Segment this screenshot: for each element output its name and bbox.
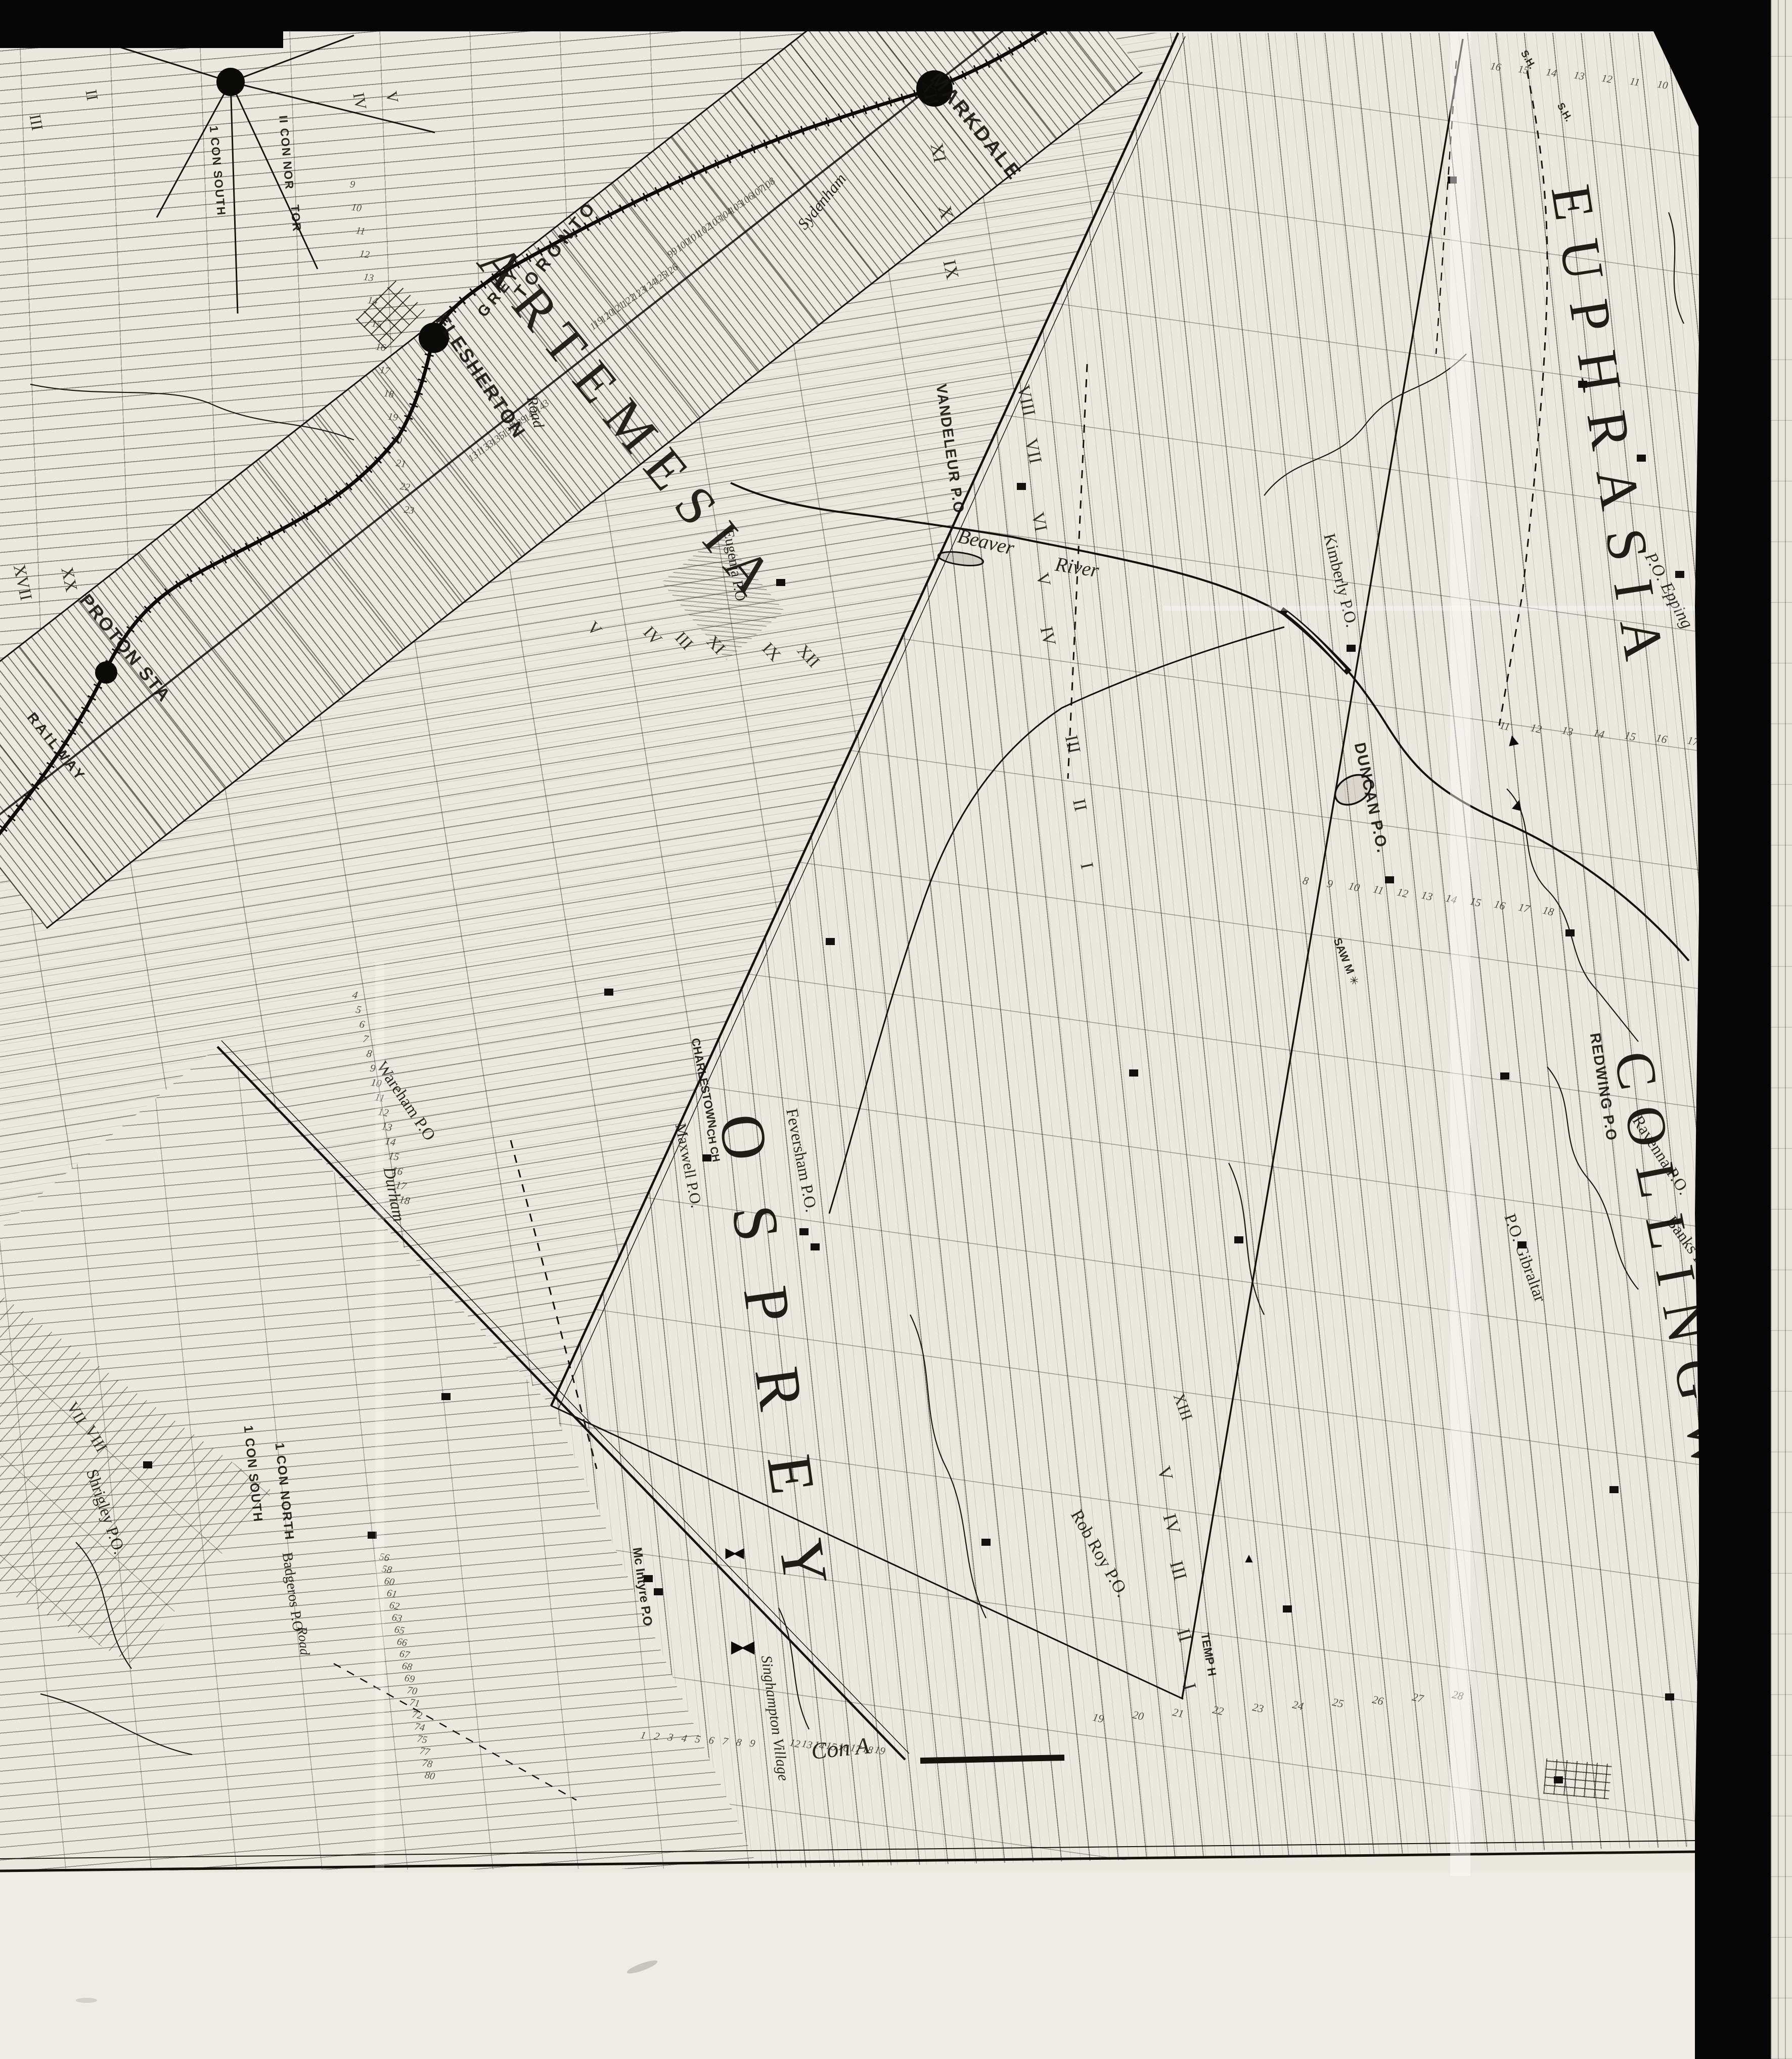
- lots-badgeros-column: 63: [391, 1612, 402, 1624]
- lots-badgeros-column: 72: [411, 1709, 423, 1721]
- lots-collingwood-east: 15: [1624, 730, 1637, 743]
- building-marker: [1500, 1072, 1509, 1080]
- lots-badgeros-column: 62: [388, 1600, 400, 1612]
- lots-badgeros-column: 75: [416, 1733, 428, 1745]
- lots-badgeros-column: 60: [383, 1576, 395, 1587]
- lots-badgeros-column: 78: [421, 1758, 433, 1769]
- village-bowtie: ▶◀: [731, 1639, 751, 1656]
- lots-collingwood-south: 26: [1371, 1694, 1384, 1707]
- flag-mark: ▲: [1503, 730, 1523, 750]
- lots-collingwood-south: 27: [1411, 1691, 1424, 1705]
- village-bowtie: ▶◀: [725, 1546, 741, 1560]
- lots-proton-column: 17: [379, 365, 391, 377]
- book-gutter-bar: [1695, 0, 1771, 2059]
- beaver-river: [731, 483, 1689, 1214]
- lots-badgeros-column: 69: [404, 1673, 415, 1684]
- lots-wareham-column: 15: [388, 1150, 400, 1162]
- con-numeral: III: [27, 113, 46, 131]
- lots-proton-column: 21: [395, 458, 407, 470]
- building-marker: [1609, 1486, 1619, 1493]
- lots-collingwood-east: 14: [1592, 727, 1605, 740]
- lots-proton-column: 10: [351, 202, 363, 214]
- building-marker: [1347, 645, 1356, 652]
- lots-collingwood-south: 21: [1172, 1707, 1185, 1720]
- building-marker: [826, 938, 835, 945]
- building-marker: [1283, 1605, 1292, 1613]
- lots-euphrasia-north: 16: [1490, 61, 1502, 73]
- lots-proton-column: 15: [371, 319, 383, 330]
- lots-proton-column: 22: [399, 481, 411, 493]
- con-numeral: III: [1062, 734, 1084, 755]
- building-marker: [654, 1588, 663, 1595]
- lots-proton-column: 12: [359, 249, 371, 260]
- lots-badgeros-column: 68: [401, 1661, 413, 1672]
- lots-collingwood-east: 13: [1561, 725, 1574, 738]
- lots-collingwood-south: 22: [1212, 1704, 1225, 1717]
- building-marker: [1565, 929, 1575, 936]
- building-marker: [1385, 876, 1394, 883]
- lots-proton-column: 23: [404, 505, 415, 516]
- con-numeral: XII: [919, 78, 942, 107]
- scan-border-top-left: [0, 0, 283, 48]
- lots-badgeros-column: 70: [406, 1685, 418, 1696]
- lots-proton-column: 14: [367, 295, 379, 307]
- lots-proton-column: 16: [375, 342, 387, 353]
- lots-osprey-south-east: 12: [789, 1737, 801, 1750]
- lots-euphrasia-north: 11: [1629, 76, 1641, 88]
- lots-proton-column: 11: [355, 226, 366, 237]
- con-numeral: XX: [58, 565, 79, 593]
- map-linework: [0, 0, 1792, 2059]
- label-con-a: Con A: [810, 1734, 871, 1763]
- building-marker: [1129, 1069, 1138, 1077]
- lots-wareham-column: 14: [384, 1136, 396, 1148]
- lots-proton-column: 13: [363, 272, 375, 284]
- map-border-bottom: [0, 1841, 1698, 1871]
- building-marker: [1675, 571, 1684, 578]
- building-marker: [1234, 1236, 1243, 1243]
- lots-collingwood-south: 25: [1331, 1696, 1345, 1710]
- lots-collingwood-south: 24: [1291, 1699, 1305, 1712]
- con-numeral: IX: [940, 258, 962, 281]
- lots-osprey-south-east: 19: [874, 1744, 886, 1757]
- lots-badgeros-column: 67: [398, 1648, 410, 1660]
- lots-proton-column: 19: [387, 412, 399, 423]
- label-con-north-road: Road: [295, 1626, 312, 1656]
- lots-badgeros-column: 66: [396, 1636, 408, 1648]
- building-marker: [1554, 1776, 1563, 1783]
- building-marker: [799, 1228, 809, 1235]
- lots-collingwood-east: 16: [1655, 732, 1668, 745]
- lots-proton-column: 20: [391, 435, 403, 446]
- adjacent-page-sliver: [1771, 0, 1792, 2059]
- lots-badgeros-column: 80: [424, 1770, 435, 1781]
- scanned-township-map-page: ARTEMESIAOSPREYEUPHRASIACOLLINGWOODMARKD…: [0, 0, 1792, 2059]
- ink-smudge: [76, 1998, 97, 2003]
- lots-collingwood-east: 12: [1530, 722, 1543, 735]
- building-marker: [1665, 1693, 1674, 1700]
- flag-mark: ▲: [1242, 1552, 1256, 1565]
- fold-crease-vertical: [1450, 31, 1470, 1876]
- lots-badgeros-column: 71: [409, 1697, 420, 1709]
- con-numeral: IV: [350, 92, 369, 111]
- lots-badgeros-column: 74: [414, 1721, 425, 1733]
- building-marker: [604, 989, 613, 996]
- building-marker: [441, 1393, 451, 1400]
- lots-euphrasia-north: 14: [1545, 67, 1557, 79]
- lots-badgeros-column: 77: [419, 1745, 430, 1757]
- building-marker: [981, 1539, 991, 1546]
- village-roads: [76, 33, 435, 314]
- lots-badgeros-column: 61: [386, 1588, 397, 1599]
- building-marker: [1017, 483, 1026, 490]
- con-numeral: VI: [1028, 511, 1050, 533]
- town-dot-northwest-village: [216, 68, 245, 96]
- lots-collingwood-south: 19: [1092, 1712, 1105, 1725]
- con-numeral: IV: [1037, 625, 1059, 648]
- lots-euphrasia-north: 10: [1656, 79, 1669, 91]
- fold-crease-vertical-2: [375, 961, 384, 1871]
- ink-smudge: [626, 1958, 659, 1976]
- lots-collingwood-south: 23: [1251, 1702, 1265, 1715]
- lots-proton-column: 18: [383, 388, 395, 400]
- lots-collingwood-south: 20: [1132, 1709, 1145, 1722]
- lots-badgeros-column: 65: [393, 1624, 405, 1636]
- paper-bottom-margin: [0, 1872, 1699, 2059]
- label-tor-road: TOR: [289, 204, 303, 233]
- town-dot-proton-station: [95, 661, 117, 684]
- lots-euphrasia-north: 12: [1601, 73, 1613, 85]
- fold-crease-horizontal: [1163, 606, 1698, 611]
- con-numeral: VII: [1022, 437, 1045, 465]
- con-numeral: XI: [927, 142, 949, 164]
- creeks: [30, 212, 1684, 1755]
- building-marker: [811, 1243, 820, 1250]
- lots-euphrasia-north: 13: [1573, 70, 1585, 82]
- building-marker: [143, 1461, 152, 1468]
